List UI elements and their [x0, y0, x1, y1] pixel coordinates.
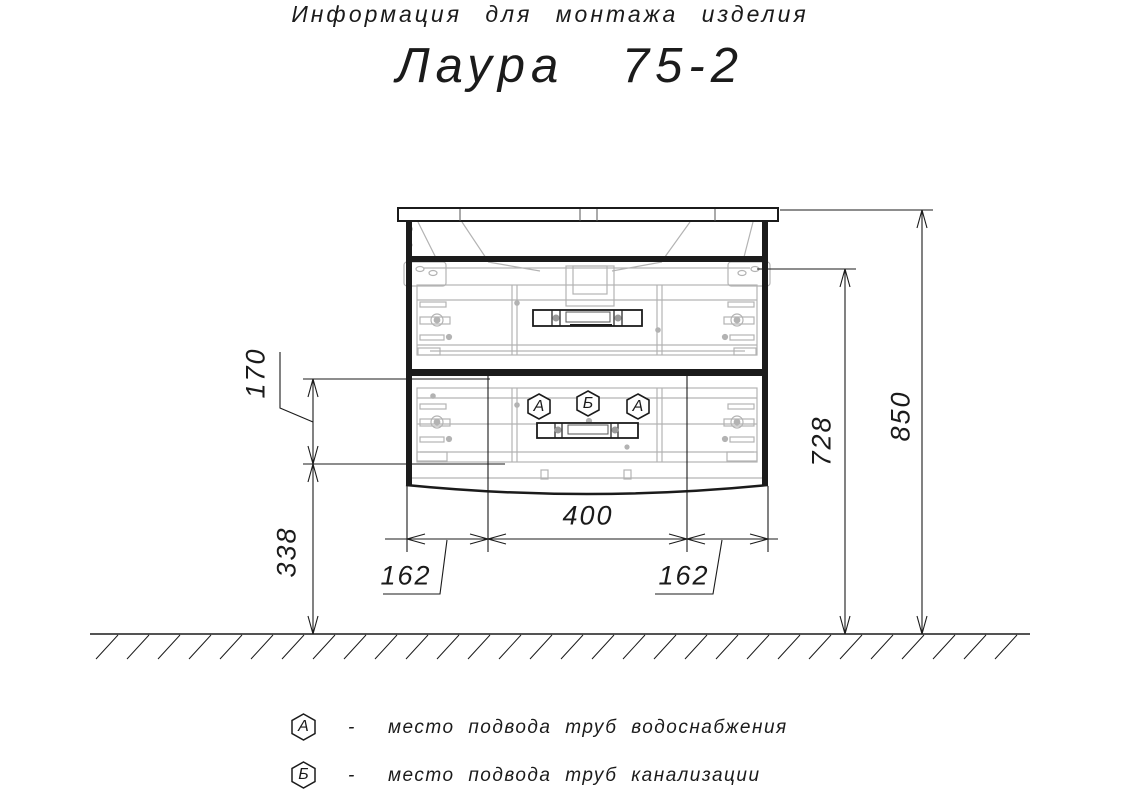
dimension-label-162-left: 162 — [380, 561, 431, 592]
dimension-label-338: 338 — [272, 526, 303, 577]
dimension-label-162-right: 162 — [658, 561, 709, 592]
countertop — [398, 208, 778, 221]
dimension-label-170: 170 — [241, 347, 272, 398]
floor-line — [90, 634, 1030, 659]
right-side-panel — [762, 221, 768, 486]
upper-drawer-handle — [533, 310, 642, 326]
legend-water-row: -место подвода труб водоснабжения — [348, 717, 788, 739]
marker-letter: А — [633, 399, 644, 415]
legend-sewer-text: место подвода труб канализации — [388, 765, 761, 786]
left-side-panel — [406, 221, 412, 486]
cabinet-technical-drawing — [0, 0, 1122, 792]
legend-letter: А — [298, 719, 309, 735]
legend-sewer-row: -место подвода труб канализации — [348, 765, 761, 787]
curved-bottom-edge — [406, 485, 768, 494]
dimension-label-400: 400 — [562, 501, 613, 532]
legend-dash: - — [348, 717, 388, 739]
dimension-label-850: 850 — [886, 390, 917, 441]
installation-drawing-page: Информация для монтажа изделия Лаура 75-… — [0, 0, 1122, 792]
marker-letter: А — [534, 399, 545, 415]
marker-sewer-center: Б — [576, 390, 600, 417]
legend-dash: - — [348, 765, 388, 787]
lower-drawer-handle — [537, 423, 638, 438]
marker-water-left: А — [527, 393, 551, 420]
dimension-label-728: 728 — [807, 415, 838, 466]
marker-water-right: А — [626, 393, 650, 420]
marker-letter: Б — [583, 396, 593, 412]
legend-letter: Б — [298, 767, 308, 783]
legend-symbol-water: А — [291, 713, 316, 741]
legend-symbol-sewer: Б — [291, 761, 316, 789]
legend-water-text: место подвода труб водоснабжения — [388, 717, 788, 738]
